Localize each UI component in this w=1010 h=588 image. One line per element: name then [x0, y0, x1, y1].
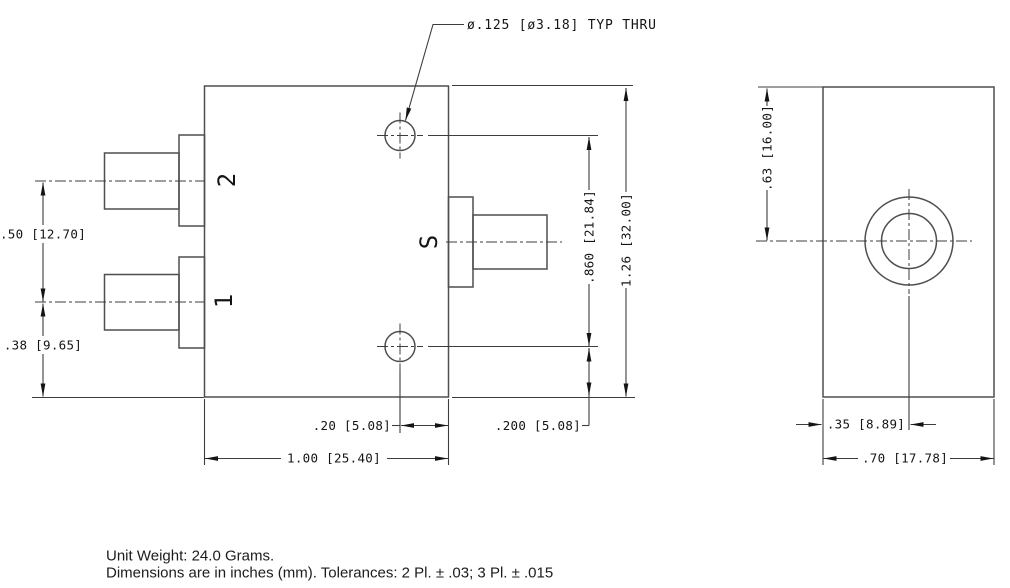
- dim-text-width-front: 1.00 [25.40]: [287, 451, 381, 466]
- connector-s: [446, 197, 562, 287]
- dim-width-side: .70 [17.78]: [824, 451, 994, 466]
- dim-text-hole-to-edge: .20 [5.08]: [313, 418, 391, 433]
- callout-text: ø.125 [ø3.18] TYP THRU: [467, 18, 657, 33]
- dim-height: 1.26 [32.00]: [619, 88, 634, 397]
- dim-hole-to-bottom: .200 [5.08]: [495, 348, 589, 433]
- callout-leader: [406, 25, 465, 121]
- dim-hole-spacing: .860 [21.84]: [582, 137, 597, 346]
- dim-text-hole-to-bottom: .200 [5.08]: [495, 418, 581, 433]
- dim-center-from-left: .35 [8.89]: [796, 417, 936, 432]
- connector-2: [35, 135, 205, 226]
- side-connector-face: [756, 189, 972, 430]
- note-unit-weight: Unit Weight: 24.0 Grams.: [106, 548, 274, 565]
- drawing-canvas: 2 1 S .50 [12.70] .38 [9.65]: [0, 0, 1010, 588]
- dim-text-height: 1.26 [32.00]: [619, 193, 634, 287]
- mounting-hole-top: [377, 113, 423, 159]
- hole-callout: ø.125 [ø3.18] TYP THRU: [406, 18, 657, 121]
- note-tolerances: Dimensions are in inches (mm). Tolerance…: [106, 565, 553, 582]
- dim-port-spacing: .50 [12.70]: [0, 183, 86, 302]
- side-extension-lines: [758, 87, 994, 465]
- dim-text-port-spacing: .50 [12.70]: [0, 227, 86, 242]
- dim-port1-to-bottom: .38 [9.65]: [4, 304, 82, 397]
- dim-text-center-from-left: .35 [8.89]: [827, 417, 905, 432]
- side-inner-circle: [882, 214, 937, 269]
- front-body-outline: [205, 86, 449, 397]
- engineering-drawing-page: 2 1 S .50 [12.70] .38 [9.65]: [0, 0, 1010, 588]
- front-view: 2 1 S .50 [12.70] .38 [9.65]: [0, 18, 657, 466]
- connector-1: [35, 257, 205, 348]
- notes-block: Unit Weight: 24.0 Grams. Dimensions are …: [106, 548, 553, 582]
- port-s-label: S: [415, 235, 443, 249]
- dim-width-front: 1.00 [25.40]: [205, 451, 448, 466]
- dim-text-hole-spacing: .860 [21.84]: [582, 190, 597, 284]
- dim-text-port1-to-bottom: .38 [9.65]: [4, 338, 82, 353]
- dim-text-width-side: .70 [17.78]: [862, 451, 948, 466]
- dim-center-from-top: .63 [16.00]: [760, 89, 775, 241]
- port-2-label: 2: [213, 173, 241, 187]
- port-1-label: 1: [210, 294, 238, 308]
- dim-text-center-from-top: .63 [16.00]: [760, 105, 775, 191]
- side-view: .63 [16.00] .35 [8.89] .70 [17.78]: [756, 87, 994, 466]
- dim-hole-to-edge: .20 [5.08]: [313, 418, 448, 433]
- mounting-hole-bottom: [377, 324, 423, 370]
